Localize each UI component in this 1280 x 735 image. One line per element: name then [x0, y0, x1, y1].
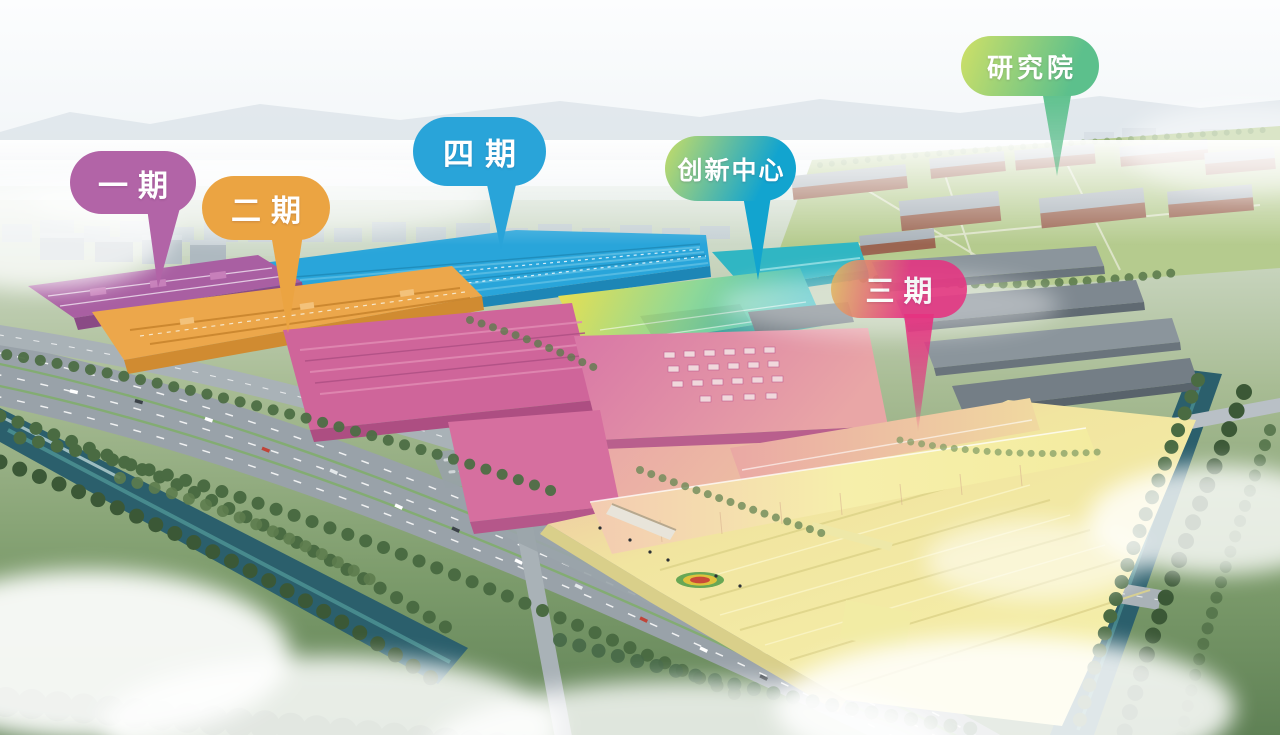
- callout-phase1: 一期: [70, 151, 196, 214]
- callout-institute-label: 研究院: [983, 48, 1077, 85]
- callout-innovation-label: 创新中心: [675, 151, 785, 187]
- callout-innovation-center: 创新中心: [665, 136, 796, 201]
- aerial-campus-map: 一期 二期 四期 创新中心 三期 研究院: [0, 0, 1280, 735]
- callout-phase4-label: 四期: [432, 129, 527, 174]
- callout-phase3-label: 三期: [856, 268, 941, 310]
- callout-phase3: 三期: [831, 260, 967, 318]
- terrain-rendering: [0, 0, 1280, 735]
- rainbow-garden: [676, 572, 724, 588]
- callout-phase2: 二期: [202, 176, 330, 240]
- callout-phase4: 四期: [413, 117, 546, 186]
- callout-research-institute: 研究院: [961, 36, 1099, 96]
- callout-phase2-label: 二期: [221, 186, 311, 230]
- callout-phase1-label: 一期: [88, 161, 178, 205]
